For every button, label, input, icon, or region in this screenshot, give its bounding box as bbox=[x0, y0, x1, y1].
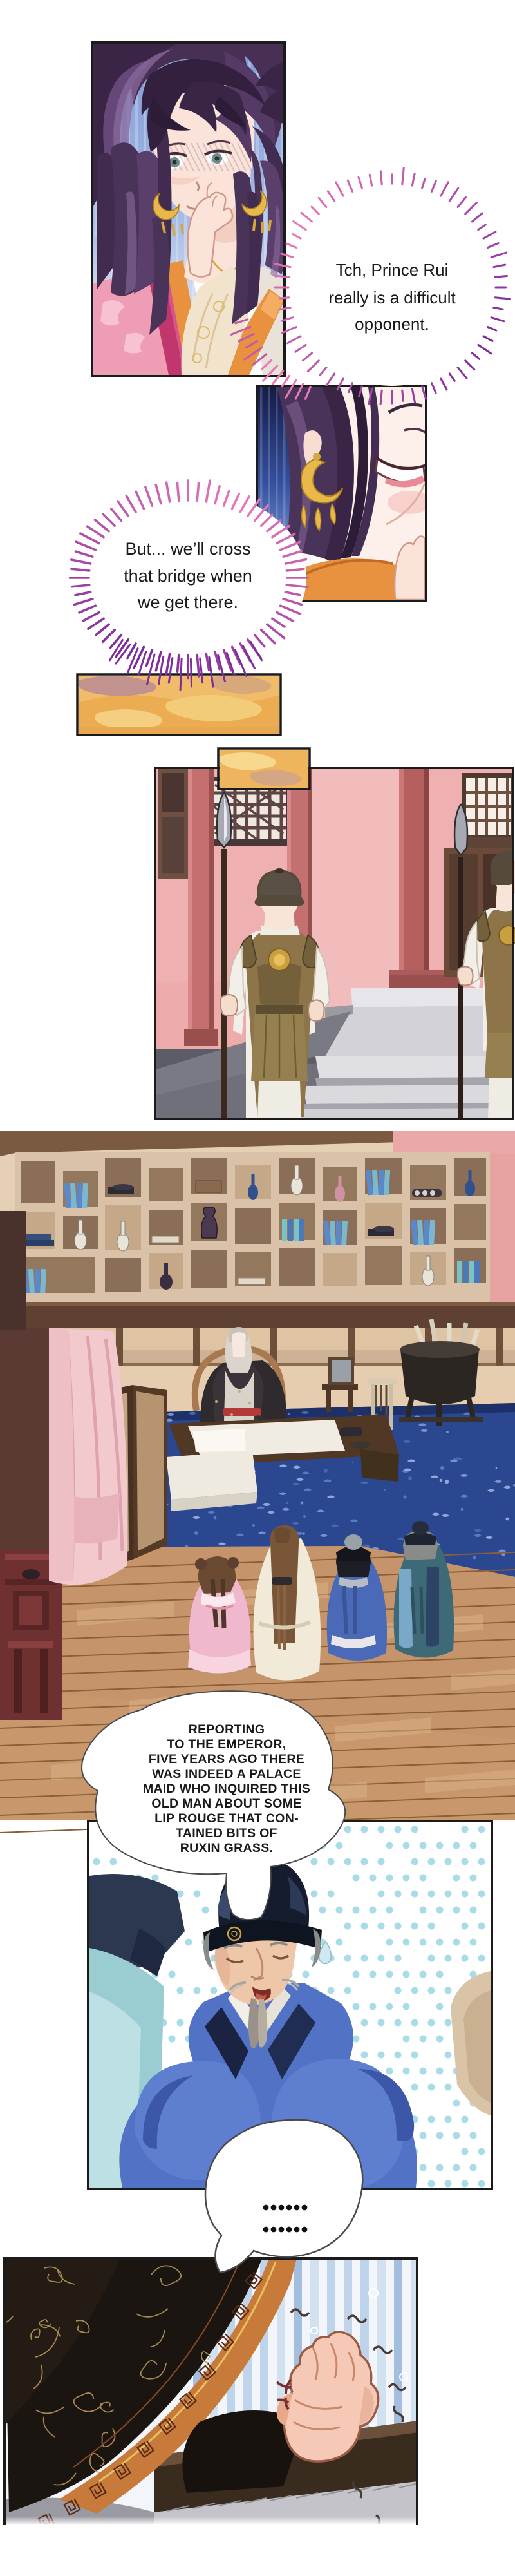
svg-text:FIVE YEARS AGO THERE: FIVE YEARS AGO THERE bbox=[149, 1752, 304, 1766]
svg-text:REPORTING: REPORTING bbox=[189, 1722, 265, 1737]
svg-text:LIP ROUGE THAT CON-: LIP ROUGE THAT CON- bbox=[154, 1811, 299, 1826]
svg-text:we get there.: we get there. bbox=[137, 593, 238, 612]
svg-text:TO THE EMPEROR,: TO THE EMPEROR, bbox=[167, 1737, 286, 1751]
svg-text:that bridge when: that bridge when bbox=[124, 566, 252, 586]
svg-text:OLD MAN ABOUT SOME: OLD MAN ABOUT SOME bbox=[151, 1797, 301, 1811]
svg-text:opponent.: opponent. bbox=[355, 314, 429, 334]
svg-text:really is a difficult: really is a difficult bbox=[328, 288, 456, 307]
svg-text:TAINED BITS OF: TAINED BITS OF bbox=[176, 1826, 277, 1840]
svg-text:RUXIN GRASS.: RUXIN GRASS. bbox=[180, 1841, 273, 1855]
svg-text:MAID WHO INQUIRED THIS: MAID WHO INQUIRED THIS bbox=[143, 1782, 310, 1796]
svg-text:But... we’ll cross: But... we’ll cross bbox=[125, 539, 250, 558]
svg-text:Tch, Prince Rui: Tch, Prince Rui bbox=[336, 260, 449, 280]
svg-text:WAS INDEED A PALACE: WAS INDEED A PALACE bbox=[152, 1767, 301, 1781]
